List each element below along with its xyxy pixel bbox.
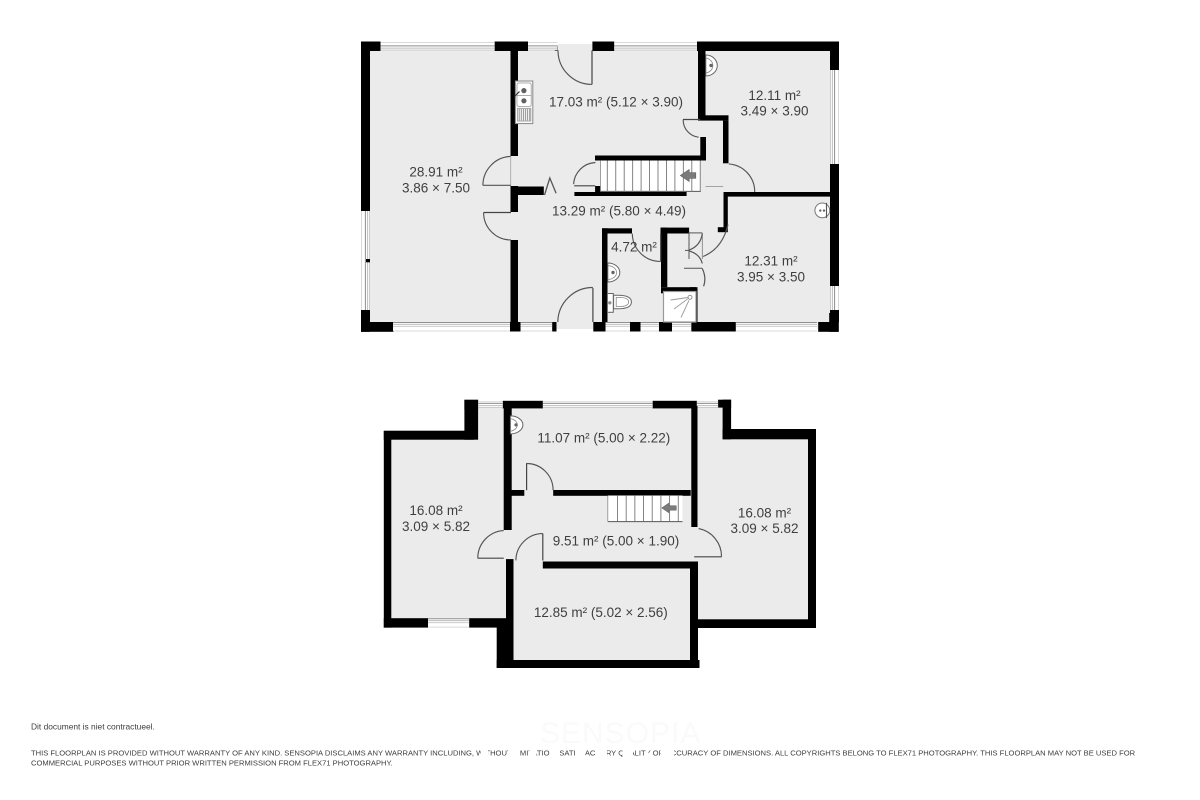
svg-text:9.51 m² (5.00 × 1.90): 9.51 m² (5.00 × 1.90) bbox=[553, 534, 679, 549]
svg-text:SENSOPIA: SENSOPIA bbox=[540, 717, 701, 750]
svg-text:Dit document is niet contractu: Dit document is niet contractueel. bbox=[31, 722, 155, 732]
svg-text:13.29 m² (5.80 × 4.49): 13.29 m² (5.80 × 4.49) bbox=[552, 204, 686, 219]
svg-text:3.86 × 7.50: 3.86 × 7.50 bbox=[402, 181, 470, 196]
svg-text:17.03 m² (5.12 × 3.90): 17.03 m² (5.12 × 3.90) bbox=[549, 95, 683, 110]
svg-text:16.08 m²: 16.08 m² bbox=[409, 503, 463, 518]
svg-text:11.07 m² (5.00 × 2.22): 11.07 m² (5.00 × 2.22) bbox=[537, 431, 670, 446]
svg-text:3.49 × 3.90: 3.49 × 3.90 bbox=[741, 104, 809, 119]
svg-text:12.31 m²: 12.31 m² bbox=[744, 253, 798, 268]
svg-text:4.72 m²: 4.72 m² bbox=[611, 240, 657, 255]
svg-text:16.08 m²: 16.08 m² bbox=[738, 505, 792, 520]
svg-text:3.09 × 5.82: 3.09 × 5.82 bbox=[402, 519, 470, 534]
svg-text:3.09 × 5.82: 3.09 × 5.82 bbox=[731, 521, 799, 536]
svg-text:12.11 m²: 12.11 m² bbox=[748, 88, 801, 103]
svg-text:12.85 m² (5.02 × 2.56): 12.85 m² (5.02 × 2.56) bbox=[534, 605, 668, 620]
svg-text:28.91 m²: 28.91 m² bbox=[409, 165, 463, 180]
svg-text:3.95 × 3.50: 3.95 × 3.50 bbox=[737, 269, 805, 284]
svg-text:COMMERCIAL PURPOSES WITHOUT PR: COMMERCIAL PURPOSES WITHOUT PRIOR WRITTE… bbox=[31, 759, 393, 768]
